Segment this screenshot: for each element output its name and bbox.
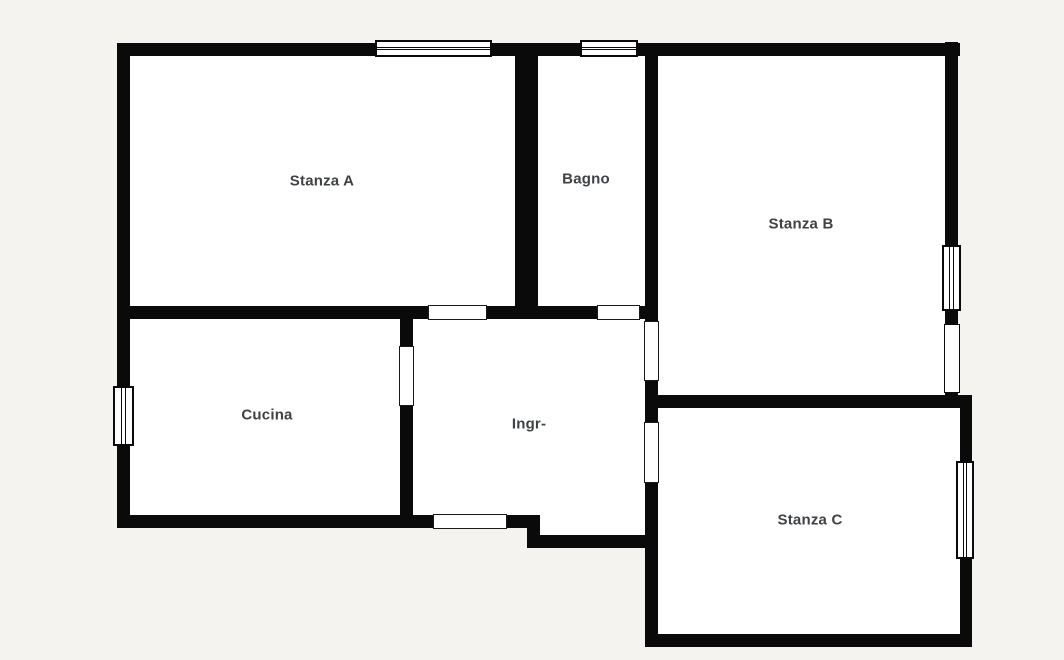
window-stanza-a-top-pane: [377, 47, 490, 51]
wall-ingresso-notch-left: [527, 515, 540, 548]
window-stanza-b-right-1: [942, 245, 961, 311]
wall-cucina-ingresso: [400, 306, 413, 528]
room-label-cucina: Cucina: [241, 407, 292, 424]
door-bagno-ingresso: [597, 305, 640, 320]
window-stanza-a-top: [375, 40, 492, 57]
room-label-stanza-c: Stanza C: [778, 512, 843, 529]
door-ingresso-exit: [433, 514, 507, 529]
room-label-ingresso: Ingr-: [512, 416, 546, 433]
wall-bagno-left: [515, 43, 538, 319]
wall-top: [117, 43, 960, 56]
wall-left: [117, 43, 130, 528]
room-label-stanza-b: Stanza B: [769, 216, 834, 233]
window-stanza-b-right-1-pane: [949, 247, 953, 309]
wall-stanza-b-bottom: [645, 395, 972, 408]
window-stanza-c-right-pane: [963, 463, 967, 557]
room-label-bagno: Bagno: [562, 171, 610, 188]
window-bagno-top: [580, 40, 638, 57]
window-stanza-b-right-2: [944, 324, 960, 393]
door-stanza-b-ingresso: [644, 321, 659, 381]
window-stanza-c-right: [956, 461, 974, 559]
door-stanza-c-ingresso: [644, 422, 659, 483]
door-stanza-a-ingresso: [428, 305, 487, 320]
wall-stanza-a-bottom: [117, 306, 658, 319]
door-cucina-ingresso: [399, 346, 414, 406]
room-label-stanza-a: Stanza A: [290, 173, 354, 190]
floor-plan: Stanza A Bagno Stanza B Cucina Ingr- Sta…: [0, 0, 1064, 660]
window-bagno-top-pane: [582, 47, 636, 51]
wall-ingresso-notch-bottom: [527, 535, 658, 548]
window-cucina-left: [113, 386, 134, 446]
window-cucina-left-pane: [121, 388, 126, 444]
wall-stanza-c-bottom: [645, 634, 972, 647]
